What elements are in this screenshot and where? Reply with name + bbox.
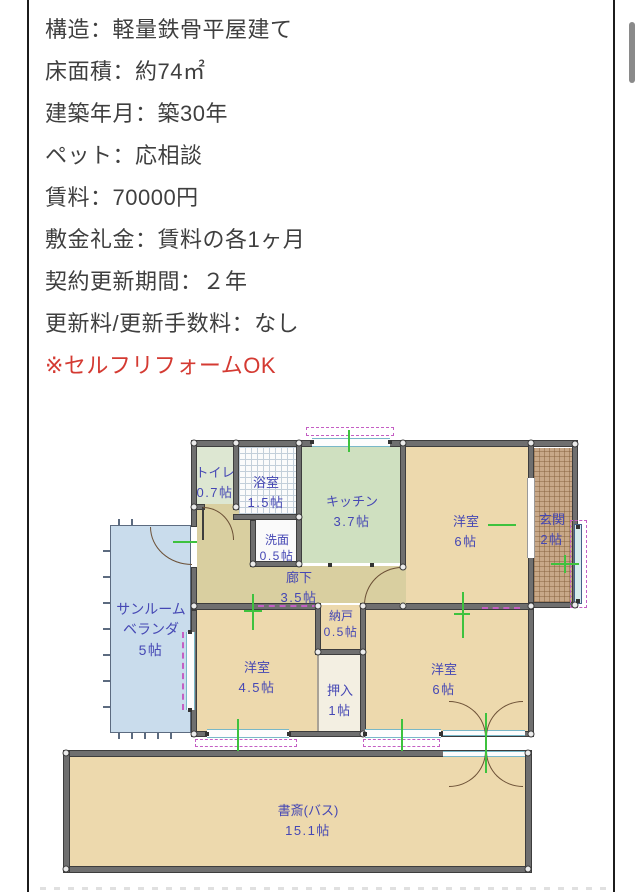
entrance-inner-sliding-door [527,478,535,558]
west-se-bottom-window [365,729,441,738]
floorplan-image: トイレ0.7帖 浴室1.5帖 キッチン3.7帖 洋室6帖 玄関2帖 洗面0.5帖… [0,0,640,892]
marker-entrance-wall [488,524,516,526]
marker-se-window [401,719,403,751]
wall-study-left [63,750,70,873]
wall-joint [63,866,70,873]
marker-hall-wall-v [252,594,254,630]
wall-bath-kitchen [296,440,302,567]
window-cap [287,732,291,736]
wall-bath-bottom [233,514,302,520]
sunroom-tick [103,706,110,708]
wall-joint [233,440,240,447]
sunroom-tick [103,680,110,682]
marker-hall-wall-h [244,610,262,612]
wall-joint [296,440,303,447]
passage-floor [440,736,525,751]
label-west-sw: 洋室4.5帖 [238,658,275,698]
wall-joint [525,750,532,757]
window-cap [363,732,367,736]
wall-joint [400,603,407,610]
kitchen-hall-open-boundary [302,563,400,566]
kitchen-top-window [312,438,390,447]
sunroom-tick [170,732,172,739]
wall-joint [572,441,579,448]
wall-joint [360,649,367,656]
boundary-dot [370,563,374,567]
label-entrance: 玄関2帖 [539,510,565,550]
wall-joint [528,731,535,738]
wall-joint [528,440,535,447]
sunroom-wall-window [186,632,195,710]
label-west-se: 洋室6帖 [431,660,457,700]
west-sw-bottom-window [207,729,289,738]
wall-joint [191,504,198,511]
wall-joint [250,561,257,568]
page: 構造：軽量鉄骨平屋建て 床面積：約74㎡ 建築年月：築30年 ペット：応相談 賃… [0,0,640,892]
label-toilet: トイレ0.7帖 [195,463,234,503]
sunroom-tick [118,732,120,739]
marker-sunroom-door [173,541,197,543]
wall-storage-left [315,603,321,655]
label-washroom: 洗面0.5帖 [260,532,295,564]
marker-front-door-v [564,555,566,573]
window-cap [188,630,192,634]
sunroom-tick [131,519,133,526]
wall-joint [400,440,407,447]
annotation-kitchen-window [306,427,394,436]
wall-joint [296,514,303,521]
wall-joint [525,866,532,873]
marker-divider-h [454,613,470,615]
wall-study-right [525,750,532,873]
marker-kitchen-window [348,430,350,452]
marker-sw-window [237,719,239,751]
window-cap [188,708,192,712]
wall-joint [63,750,70,757]
sunroom-tick [131,732,133,739]
sunroom-tick [103,576,110,578]
wall-joint [191,440,198,447]
sunroom-tick [103,602,110,604]
label-study: 書斎(バス)15.1帖 [278,801,339,841]
closet-slider-line [317,655,319,731]
sunroom-tick [103,628,110,630]
window-cap [310,440,314,444]
window-cap [576,599,580,603]
boundary-dot [328,563,332,567]
wall-storage-bottom [315,649,366,655]
sunroom-tick [144,732,146,739]
wall-joint [296,561,303,568]
cropped-next-content [40,887,610,890]
label-sunroom: サンルームベランダ5帖 [116,599,186,660]
window-cap [388,440,392,444]
window-cap [205,732,209,736]
sunroom-tick [157,732,159,739]
wall-study-bottom [63,866,532,873]
sunroom-tick [103,550,110,552]
window-cap [576,525,580,529]
label-bath: 浴室1.5帖 [247,473,284,513]
annotation-divider-wall [482,607,520,609]
annotation-sw-window [195,739,297,747]
label-storage: 納戸0.5帖 [324,608,359,640]
label-closet: 押入1帖 [327,681,353,721]
sunroom-tick [118,519,120,526]
label-kitchen: キッチン3.7帖 [326,492,378,532]
wall-joint [233,504,240,511]
window-cap [439,732,443,736]
marker-divider-v [462,592,464,638]
label-hallway: 廊下3.5帖 [280,568,317,608]
wall-joint [191,603,198,610]
sunroom-tick [103,654,110,656]
wall-joint [528,603,535,610]
label-west-ne: 洋室6帖 [453,512,479,552]
marker-double-door [485,713,487,773]
wall-joint [191,731,198,738]
wall-joint [400,564,407,571]
wall-joint [360,603,367,610]
wall-joint [315,649,322,656]
wall-storage-right [360,603,366,737]
